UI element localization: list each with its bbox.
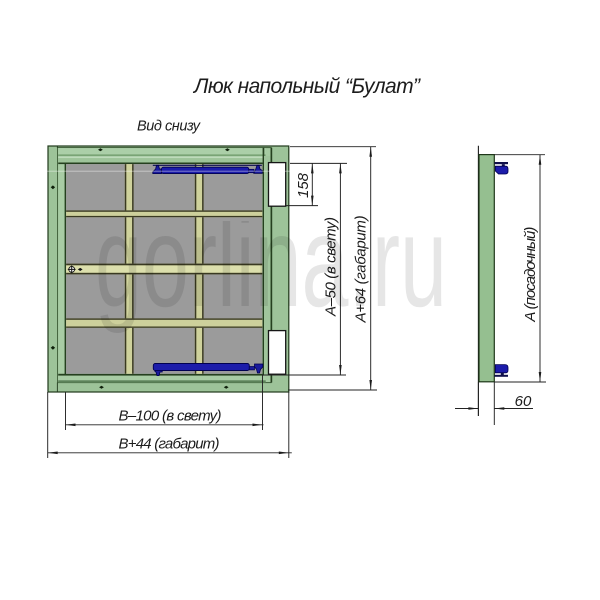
svg-text:60: 60 <box>515 393 532 410</box>
svg-text:А (посадочный): А (посадочный) <box>522 227 539 323</box>
svg-text:Люк напольный “Булат”: Люк напольный “Булат” <box>192 75 421 98</box>
svg-text:Вид снизу: Вид снизу <box>137 119 201 135</box>
svg-text:В–100 (в свету): В–100 (в свету) <box>119 407 222 424</box>
svg-text:158: 158 <box>295 172 312 198</box>
svg-text:В+44 (габарит): В+44 (габарит) <box>119 435 220 452</box>
